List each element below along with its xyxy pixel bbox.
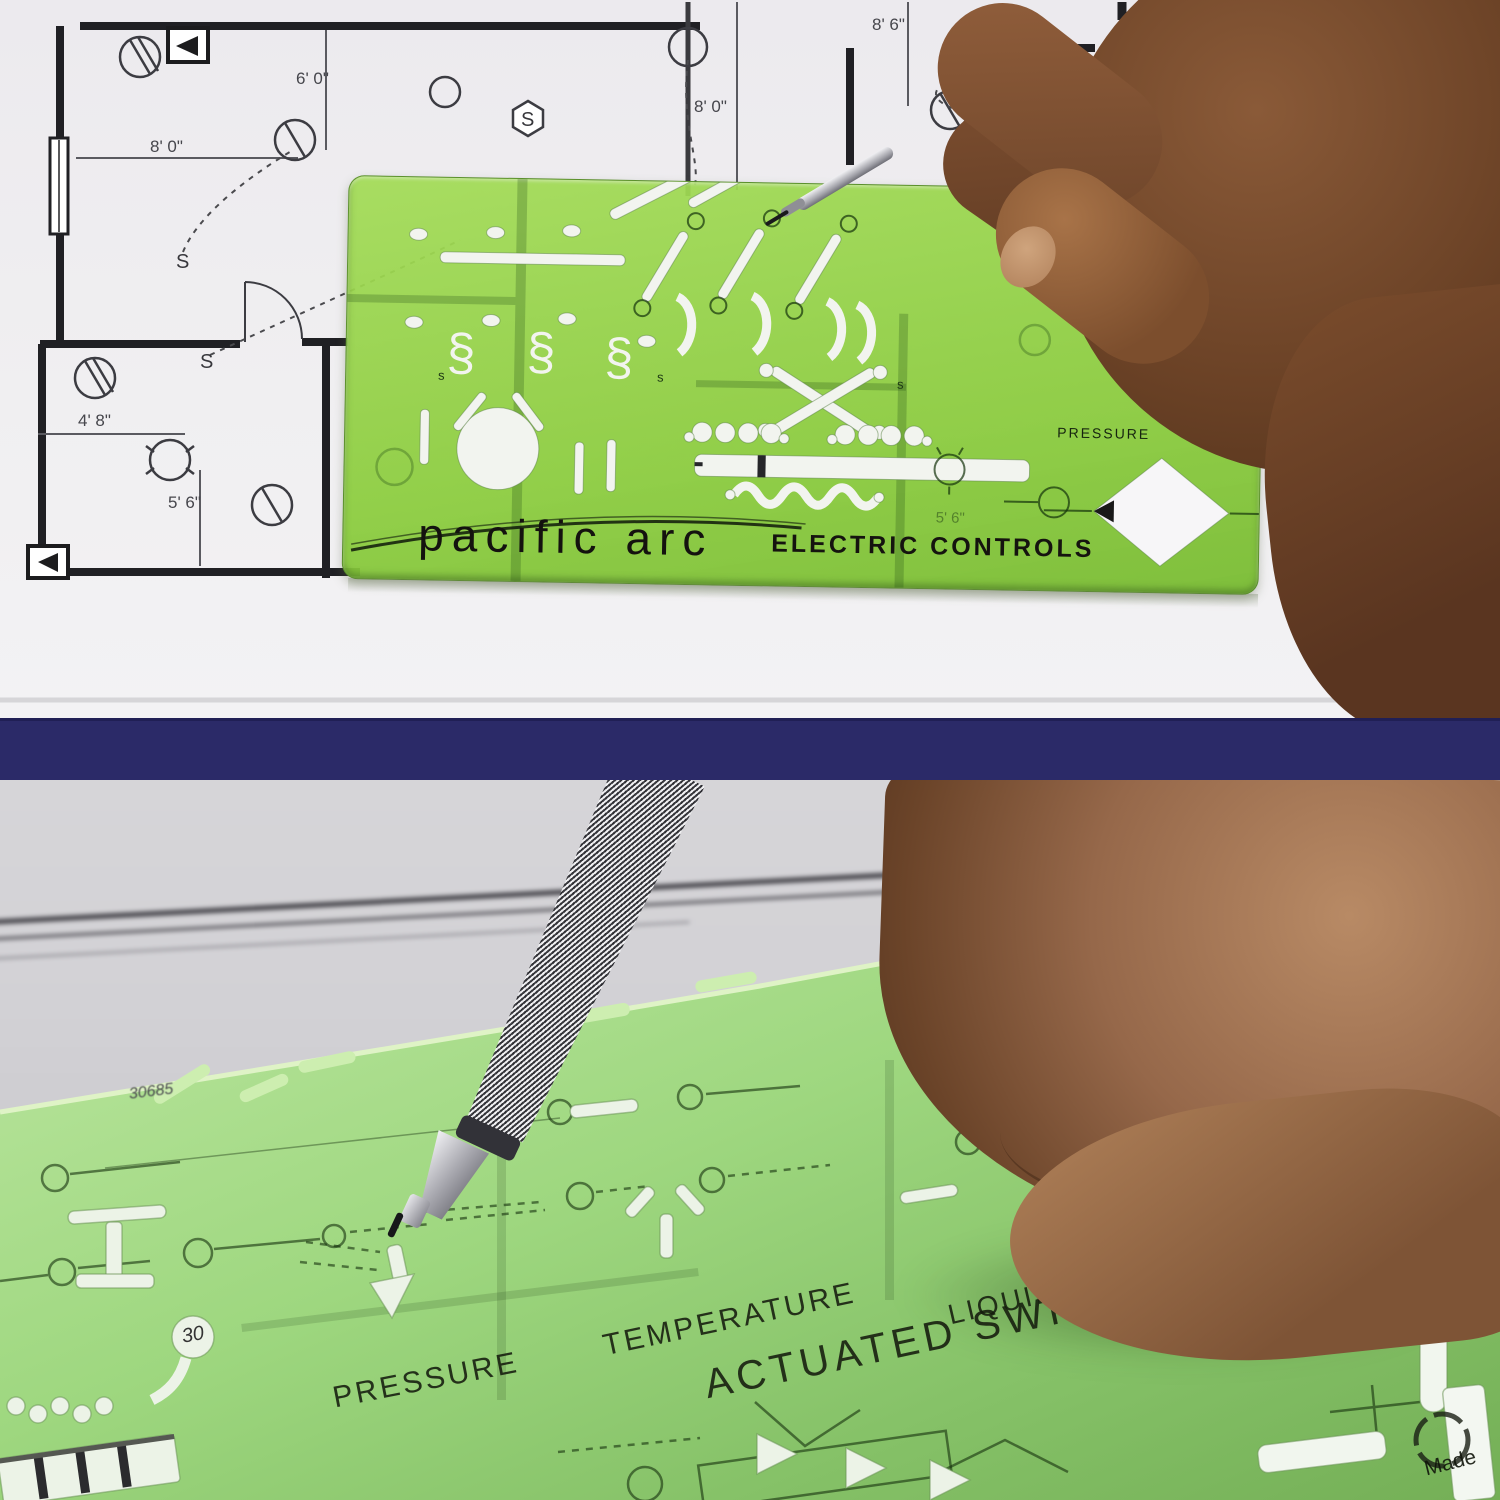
cutout-y-symbol [660,1214,673,1258]
cutout-switch-blade [640,230,690,304]
door-swing [245,282,302,342]
switch-label: S [176,251,189,273]
divider-band [0,718,1500,786]
cutout-coil-glyph: § [446,324,476,382]
switch-label: S [200,351,213,373]
dimension-label: 8' 0" [150,137,183,156]
cutout-relay-slot [440,252,625,266]
cutout-coil-bumps [684,422,932,446]
tiny-printed-s: s [897,377,904,392]
seen-through-dim: 5' 6" [936,509,965,527]
cutout-long-slot [694,454,1029,482]
cutout-resistor-wave [734,486,878,507]
dimension-label: 5' 6" [168,493,201,512]
tiny-printed-s: s [657,369,664,384]
bottom-photo-panel: PRESSURE TEMPERATURE LIQUID LEVEL ACTUAT… [0,780,1500,1500]
cutout-coil-glyph: § [604,329,634,387]
dimension-label: 8' 0" [694,97,727,116]
dimension-label: 6' 0" [296,69,329,88]
tiny-printed-s: s [438,368,445,383]
template-title: ELECTRIC CONTROLS [771,529,1095,564]
pacific-arc-logo: pacific arc [418,507,714,566]
dimension-label: 8' 6" [872,15,905,34]
product-photo: 6' 0" 8' 0" 8' 6" 8' 0" 4' 8" 5' 6" S S … [0,0,1500,1500]
seen-wall-in-slot [757,455,765,477]
pressure-label-top: PRESSURE [1057,424,1150,442]
handwritten-30: 30 [180,1322,206,1349]
top-photo-panel: 6' 0" 8' 0" 8' 6" 8' 0" 4' 8" 5' 6" S S … [0,0,1500,718]
switch-label: S [521,109,534,131]
dimension-label: 4' 8" [78,411,111,430]
cutout-coil-glyph: § [526,323,556,381]
